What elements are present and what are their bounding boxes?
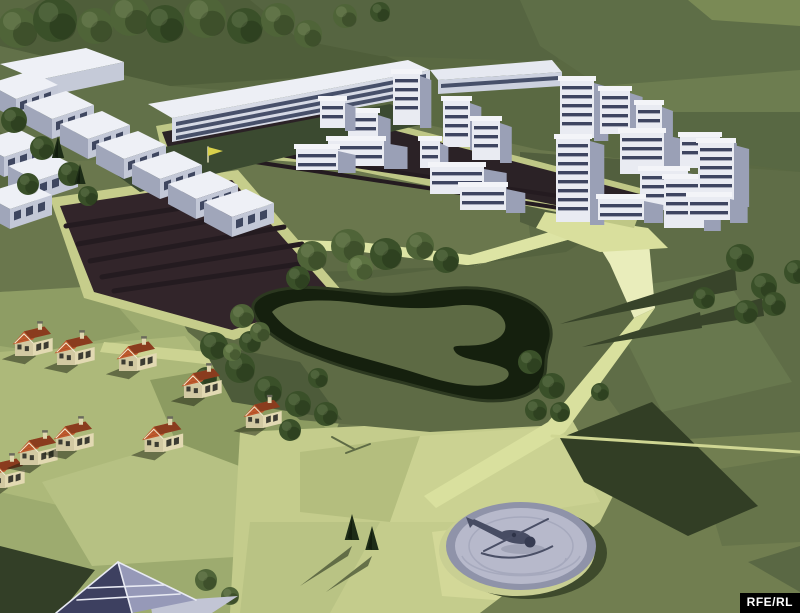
tree [406, 232, 434, 260]
tree [333, 4, 357, 28]
tree [261, 3, 295, 37]
rfe-rl-watermark: RFE/RL [740, 593, 800, 613]
render-canvas [0, 0, 800, 613]
tree [250, 322, 270, 342]
tree [227, 8, 263, 44]
tree [285, 391, 311, 417]
tree [77, 8, 113, 44]
tree [223, 343, 241, 361]
site-render-image: RFE/RL [0, 0, 800, 613]
tree [370, 238, 402, 270]
tree [550, 402, 570, 422]
tree [195, 569, 217, 591]
tree [347, 255, 373, 281]
tree [726, 244, 754, 272]
tree [286, 266, 310, 290]
tree [78, 186, 98, 206]
tree [308, 368, 328, 388]
tower-building [554, 134, 604, 225]
tree [1, 107, 27, 133]
tree [734, 300, 758, 324]
tree [370, 2, 390, 22]
tree [693, 287, 715, 309]
tree [525, 399, 547, 421]
tree [591, 383, 609, 401]
tree [30, 136, 54, 160]
tree [200, 332, 228, 360]
tree [17, 173, 39, 195]
tree [294, 20, 322, 48]
tree [518, 350, 542, 374]
tree [33, 0, 77, 42]
tree [762, 292, 786, 316]
tree [297, 241, 327, 271]
tree [539, 373, 565, 399]
tree [230, 304, 254, 328]
tree [433, 247, 459, 273]
tree [314, 402, 338, 426]
tree [146, 5, 184, 43]
watermark-text: RFE/RL [747, 595, 793, 609]
tree [279, 419, 301, 441]
